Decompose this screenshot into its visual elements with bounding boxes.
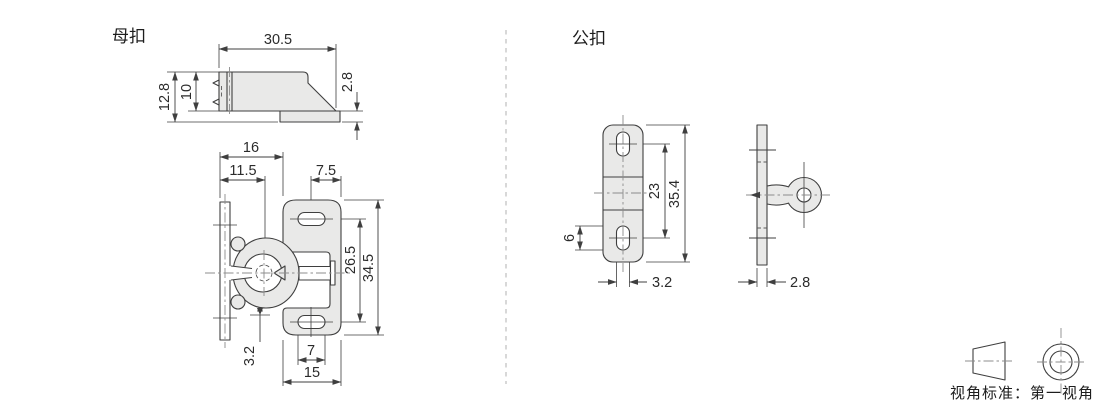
male-side-view: 2.8: [738, 125, 831, 291]
dim-female-side-body-height: 10: [179, 84, 195, 100]
dim-female-side-width: 30.5: [264, 32, 292, 48]
clip-tip-profile: [213, 99, 219, 105]
dim-female-top-edge-to-plate: 16: [243, 140, 259, 156]
female-base-plate-profile: [280, 111, 340, 122]
dim-female-top-plate-length: 34.5: [361, 254, 377, 282]
dim-female-top-edge-to-clip: 11.5: [229, 163, 256, 179]
dim-female-top-slot-spacing: 26.5: [343, 246, 359, 274]
projection-note: 视角标准：第一视角: [950, 384, 1094, 402]
dim-male-slot-length: 6: [562, 234, 578, 242]
clip-tip-profile: [213, 80, 219, 86]
dim-female-top-slot-length: 7: [307, 343, 315, 359]
dim-female-side-lip-height: 2.8: [340, 72, 356, 92]
technical-drawing-canvas: 母扣 公扣 30.5 1: [0, 0, 1110, 402]
dim-female-side-overall-height: 12.8: [157, 83, 173, 111]
female-side-view: 30.5 12.8 10 2.8: [157, 32, 363, 140]
centerline-arrow: [750, 192, 760, 198]
dim-female-top-slot-to-edge: 7.5: [316, 163, 336, 179]
dim-female-top-clip-clearance: 3.2: [242, 346, 258, 366]
male-front-view: 6 23 35.4 3.2: [562, 115, 690, 291]
female-top-view: 16 11.5 7.5 26.5 34.5 3.2 7 15: [205, 140, 384, 386]
first-angle-symbol: 视角标准：第一视角: [950, 328, 1094, 402]
dim-male-slot-spacing: 23: [647, 183, 663, 199]
dim-male-thickness: 2.8: [790, 275, 810, 291]
dim-male-slot-width: 3.2: [652, 275, 672, 291]
dim-male-plate-length: 35.4: [667, 180, 683, 208]
female-label: 母扣: [112, 27, 146, 46]
dim-female-top-plate-width: 15: [304, 365, 320, 381]
male-label: 公扣: [572, 29, 606, 48]
female-body-profile: [219, 72, 336, 111]
